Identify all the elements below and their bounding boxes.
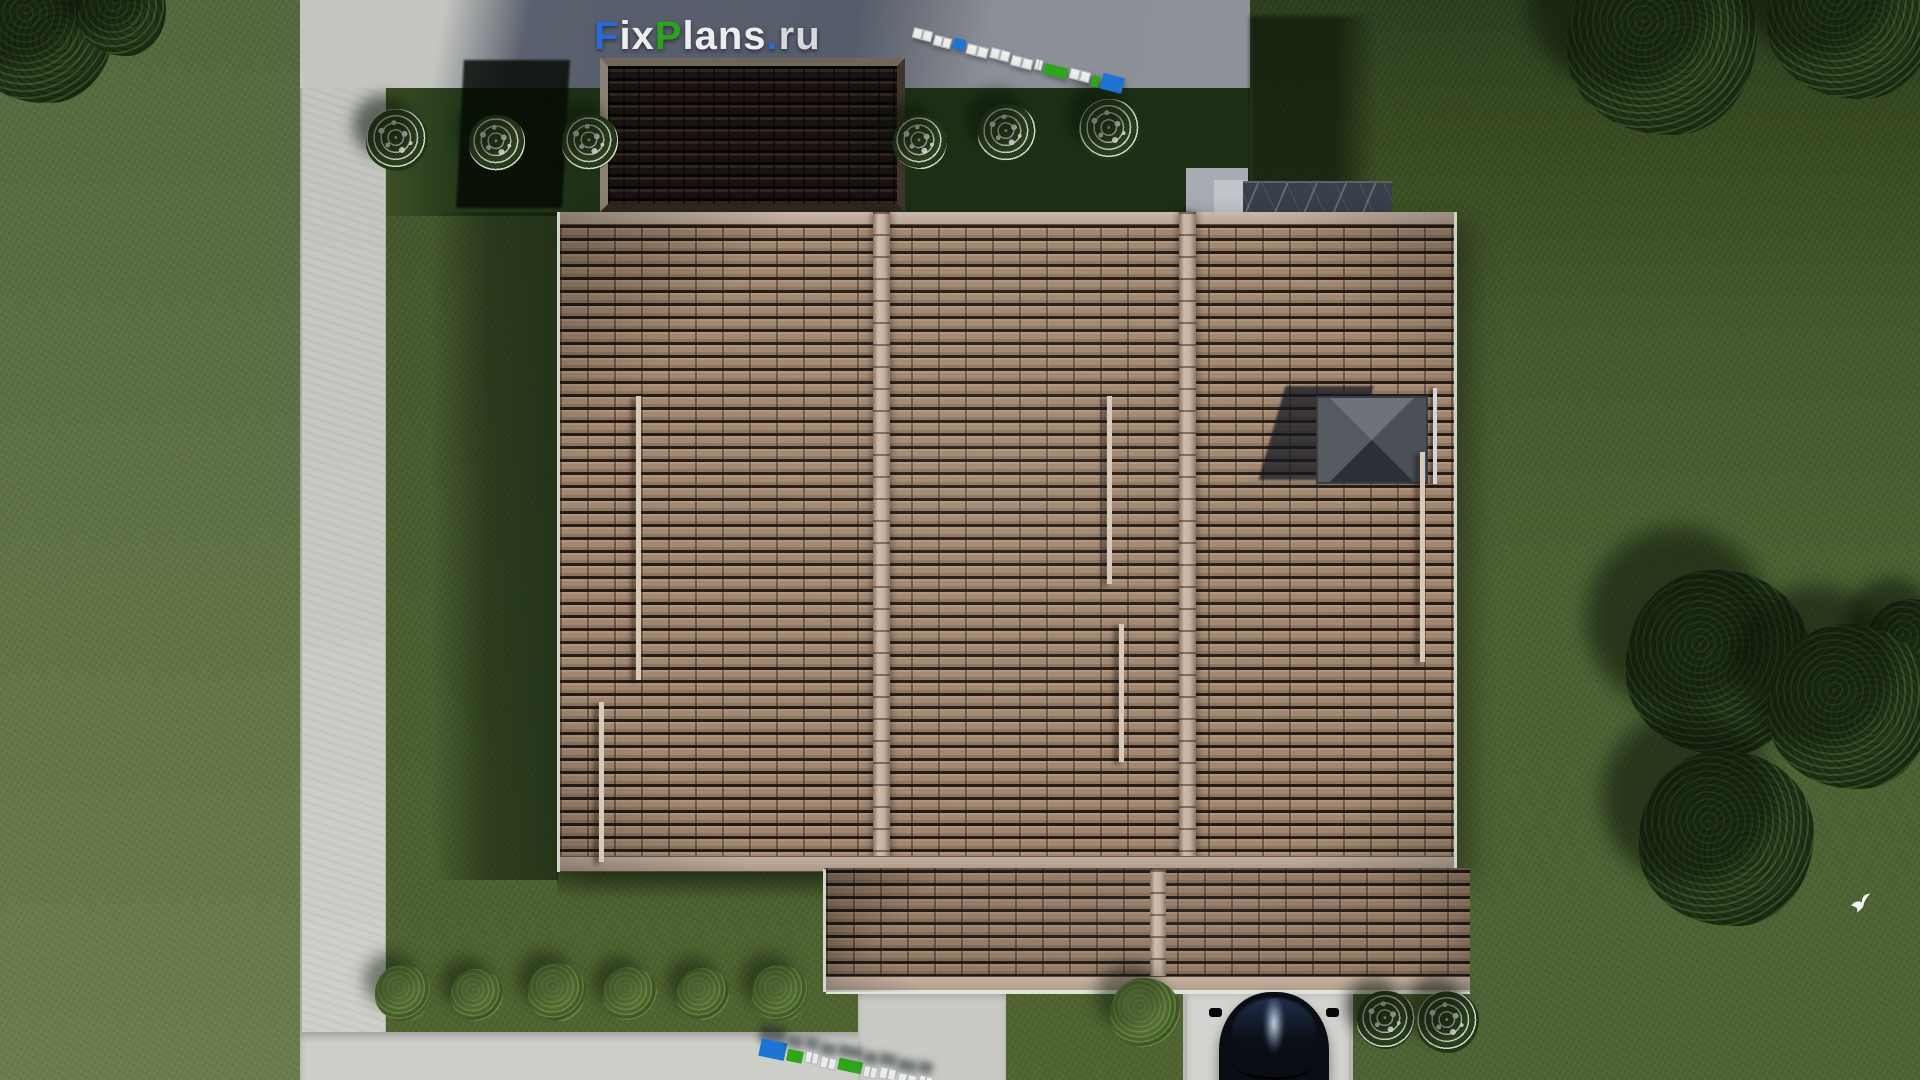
flower-bush — [562, 114, 618, 170]
tree — [1567, 0, 1757, 135]
scalebar-segment — [1090, 75, 1100, 88]
tree — [1639, 751, 1814, 926]
scalebar-segment — [819, 1056, 837, 1071]
marble-wall — [1243, 181, 1392, 216]
bird-icon — [1847, 889, 1880, 917]
car-mirror-right — [1326, 1008, 1339, 1017]
scalebar-segment — [804, 1050, 820, 1065]
flower-bush — [1417, 991, 1479, 1053]
watermark-letter: F — [594, 14, 619, 58]
bush — [375, 965, 431, 1021]
flower-bush — [1079, 99, 1141, 161]
bush — [677, 968, 729, 1020]
bush — [528, 963, 586, 1021]
watermark-letter: ru — [779, 14, 821, 58]
scalebar-segment — [917, 1075, 933, 1080]
roof-snow-guard — [1420, 452, 1425, 662]
scalebar-segment — [837, 1058, 863, 1075]
scalebar-segment — [896, 1072, 917, 1080]
roof-shade-overlay — [560, 212, 1454, 872]
chimney-cap — [1318, 398, 1426, 482]
roof-snow-guard — [1107, 396, 1112, 584]
scalebar-segment — [1034, 58, 1044, 71]
vent-pipe-icon — [1433, 388, 1437, 484]
scene-canvas: FixPlans.ru — [0, 0, 1920, 1080]
tree — [1768, 624, 1920, 789]
watermark-letter: ix — [619, 14, 654, 58]
watermark-letter: P — [655, 14, 683, 58]
scalebar-segment — [786, 1049, 804, 1064]
roof-snow-guard — [1119, 624, 1124, 762]
tree — [1767, 0, 1920, 99]
main-roof — [557, 212, 1457, 872]
car-mirror-left — [1209, 1008, 1222, 1017]
bush — [451, 969, 503, 1021]
watermark-letter: lans — [682, 14, 766, 58]
scalebar-segment — [912, 26, 934, 42]
flower-bush — [893, 115, 947, 169]
bush — [603, 967, 657, 1021]
car-hood-line — [1234, 1048, 1313, 1080]
flower-bush — [978, 104, 1036, 162]
watermark-logo: FixPlans.ru — [594, 14, 821, 59]
house-shadow — [430, 212, 558, 880]
scalebar-segment — [952, 37, 966, 51]
flower-bush — [469, 115, 525, 171]
scalebar-segment — [1068, 67, 1091, 83]
watermark-letter: . — [767, 14, 779, 58]
scalebar-segment — [862, 1065, 878, 1080]
scalebar-segment — [878, 1066, 897, 1080]
roof-snow-guard — [636, 396, 641, 680]
scalebar-segment — [989, 46, 1011, 62]
car — [1213, 992, 1335, 1080]
eave-shadow — [557, 870, 823, 898]
bush — [1110, 978, 1180, 1048]
carport-roof — [600, 58, 905, 212]
bush — [752, 965, 808, 1021]
flower-bush — [366, 109, 428, 171]
car-body — [1219, 992, 1329, 1080]
roof-snow-guard — [599, 702, 604, 862]
walkway-left — [300, 0, 386, 1080]
